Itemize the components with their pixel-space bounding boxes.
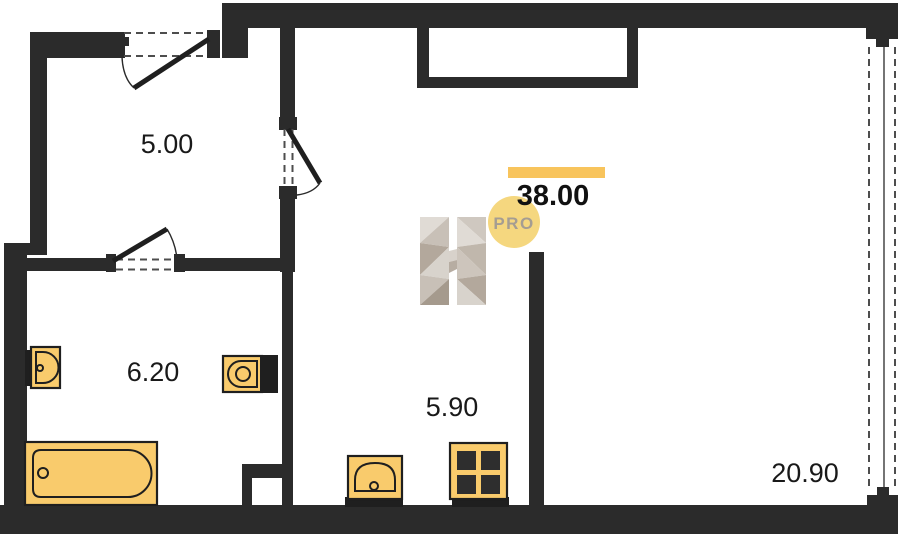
toilet-tank [260, 355, 278, 393]
wall-segment [222, 3, 248, 58]
door-jamb [279, 186, 297, 199]
letter-facet [449, 260, 457, 273]
door-jamb [207, 30, 220, 58]
hallway-area-label: 5.00 [141, 129, 194, 159]
shaft-niche-wall [242, 464, 252, 505]
window-anchor [877, 487, 889, 496]
wall-segment [27, 258, 107, 271]
door-leaf [113, 229, 167, 261]
total-area-callout: 38.00 [508, 167, 605, 212]
room-labels: 5.00 6.20 5.90 20.90 [127, 129, 839, 488]
door-jamb [174, 254, 185, 272]
stove-burner [481, 475, 500, 494]
watermark: PRO [420, 196, 540, 305]
wall-segment [866, 28, 898, 39]
wall-segment [4, 255, 27, 507]
entry-door [122, 33, 209, 88]
kitchen-sink [345, 456, 403, 507]
stove-burner [457, 475, 476, 494]
door-leaf [134, 39, 209, 88]
accent-bar [508, 167, 605, 178]
total-area-label: 38.00 [517, 180, 590, 212]
toilet [223, 355, 278, 393]
bathtub [25, 442, 157, 505]
kitchen-area-label: 5.90 [426, 392, 479, 422]
floor-plan-drawing: PRO 38.00 5.00 6.20 5.90 20.90 [0, 0, 900, 534]
wall-segment [4, 243, 47, 255]
duct-shaft [417, 28, 638, 88]
pro-badge-label: PRO [493, 214, 534, 233]
door-jamb [116, 32, 125, 58]
watermark-letter-h [420, 217, 486, 305]
wall-segment [222, 3, 898, 28]
door-swing-arc [122, 57, 134, 88]
door-jamb [124, 37, 129, 46]
wall-segment [529, 252, 544, 505]
bathroom-area-label: 6.20 [127, 357, 180, 387]
stove-burner [457, 451, 476, 470]
wall-segment [867, 495, 898, 507]
living-room-area-label: 20.90 [771, 458, 839, 488]
bathroom-door [113, 229, 177, 270]
wall-segment [30, 32, 47, 243]
window-anchor [876, 38, 889, 47]
stove [450, 443, 509, 507]
letter-facet [449, 249, 457, 262]
window [869, 47, 895, 487]
floor-plan: PRO 38.00 5.00 6.20 5.90 20.90 [0, 0, 900, 534]
door-swing-arc [167, 229, 177, 258]
duct-shaft-opening [429, 28, 627, 77]
wall-segment [280, 28, 295, 118]
bathroom-sink [25, 347, 60, 388]
stove-burner [481, 451, 500, 470]
door-swing-arc [297, 183, 320, 195]
hallway-living-door [285, 129, 321, 195]
wall-segment [0, 505, 898, 534]
wall-segment [185, 258, 293, 271]
door-jamb [279, 117, 297, 130]
